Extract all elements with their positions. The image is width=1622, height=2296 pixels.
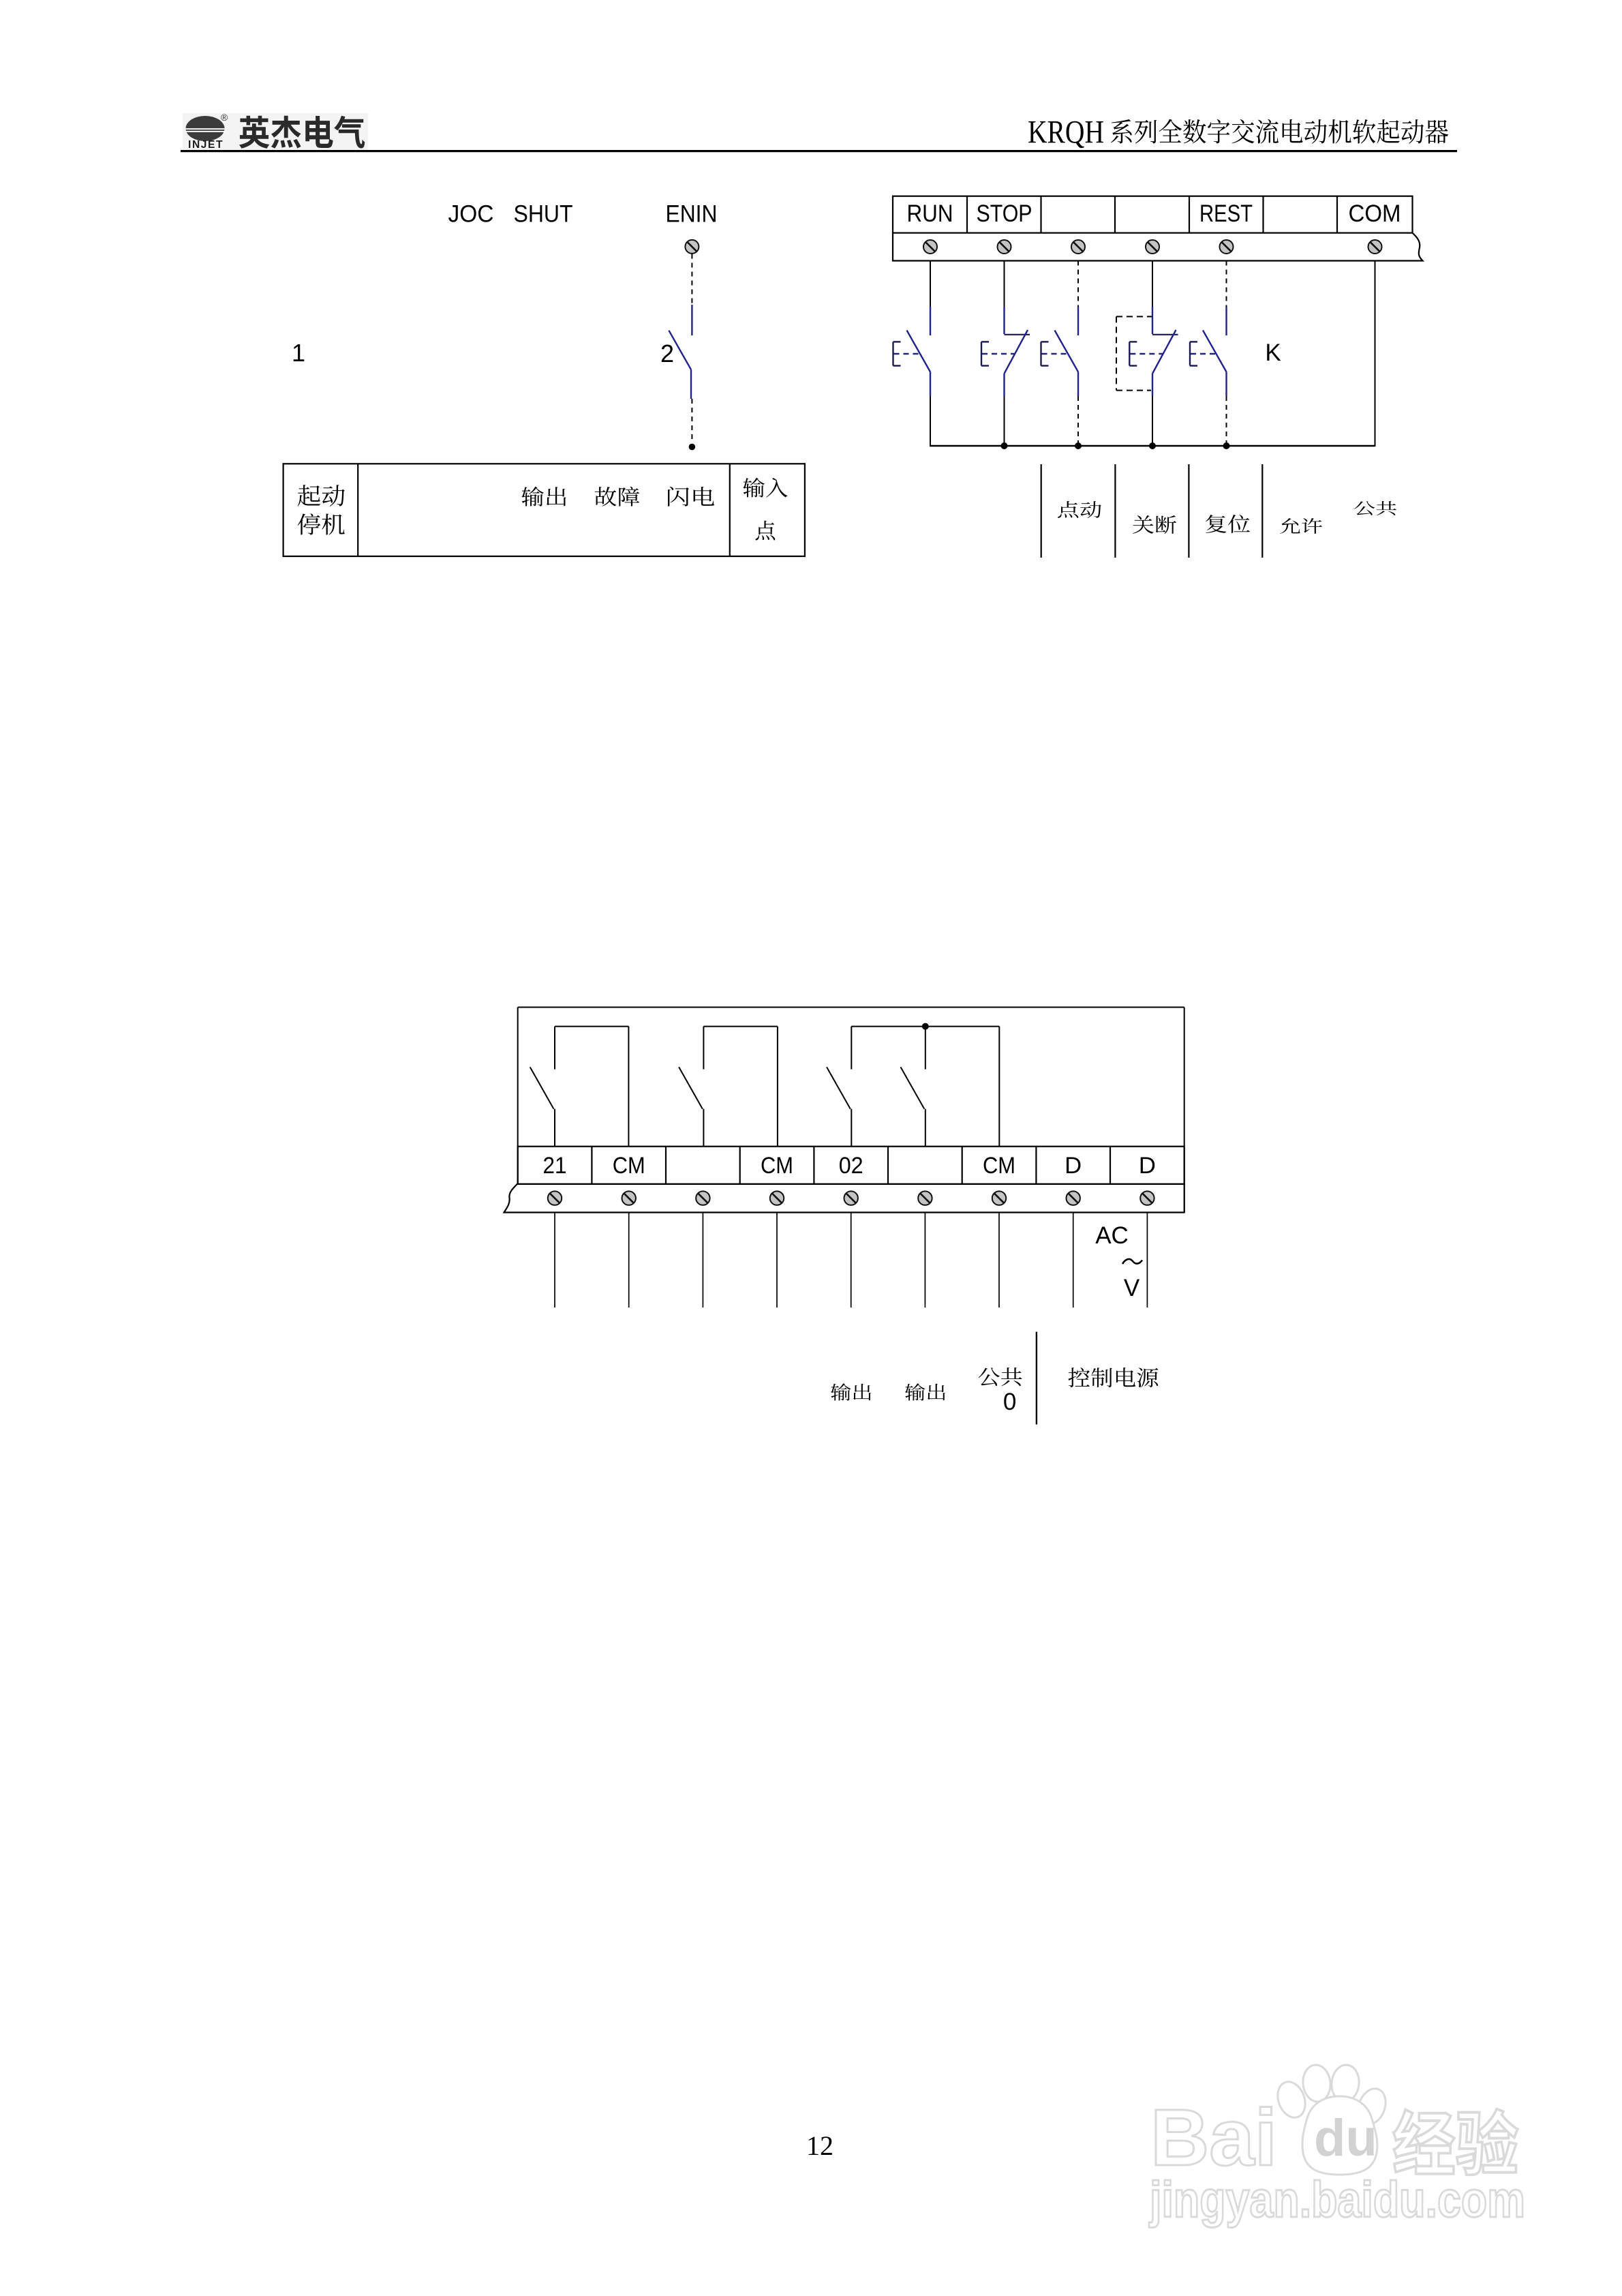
svg-text:K: K <box>1265 339 1281 366</box>
svg-text:®: ® <box>221 112 228 123</box>
svg-text:12: 12 <box>806 2130 833 2161</box>
svg-text:RUN: RUN <box>907 200 953 227</box>
svg-text:STOP: STOP <box>977 200 1032 227</box>
svg-text:0: 0 <box>1003 1389 1016 1415</box>
svg-text:CM: CM <box>983 1153 1015 1179</box>
svg-text:Bai: Bai <box>1150 2093 1277 2183</box>
svg-text:ENIN: ENIN <box>666 201 718 228</box>
svg-text:KRQH: KRQH <box>1028 115 1104 151</box>
svg-text:COM: COM <box>1349 200 1401 227</box>
svg-text:V: V <box>1124 1275 1140 1301</box>
svg-text:INJET: INJET <box>188 139 224 151</box>
svg-text:CM: CM <box>761 1153 793 1179</box>
svg-text:jingyan.baidu.com: jingyan.baidu.com <box>1148 2171 1525 2228</box>
svg-text:1: 1 <box>292 339 305 367</box>
svg-text:02: 02 <box>839 1153 863 1179</box>
svg-text:du: du <box>1314 2109 1377 2167</box>
svg-text:D: D <box>1139 1153 1156 1179</box>
svg-text:SHUT: SHUT <box>514 201 573 228</box>
svg-text:REST: REST <box>1199 200 1253 227</box>
svg-text:2: 2 <box>660 339 674 367</box>
svg-text:21: 21 <box>543 1153 567 1179</box>
svg-text:JOC: JOC <box>448 201 494 228</box>
svg-text:AC: AC <box>1095 1222 1129 1249</box>
svg-text:CM: CM <box>613 1153 645 1179</box>
svg-text:D: D <box>1065 1153 1082 1179</box>
